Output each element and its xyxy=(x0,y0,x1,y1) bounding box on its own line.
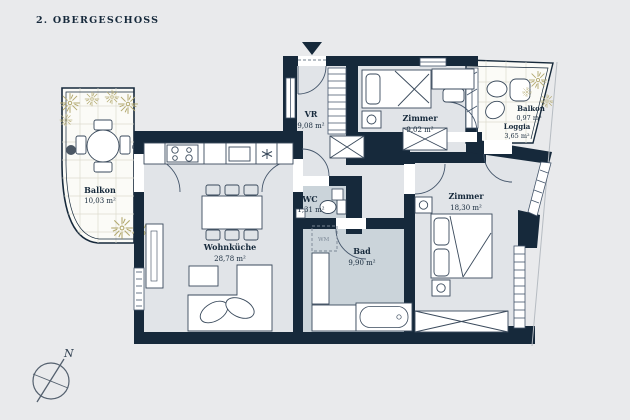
svg-text:9,08 m²: 9,08 m² xyxy=(297,122,324,130)
shaft-access-icon xyxy=(332,189,343,200)
wardrobe-icon xyxy=(415,311,508,332)
bathtub-icon xyxy=(356,303,412,331)
floorplan-svg: WM xyxy=(0,0,630,420)
double-bed-icon xyxy=(431,214,492,278)
svg-text:Zimmer: Zimmer xyxy=(448,191,484,201)
svg-text:28,78 m²: 28,78 m² xyxy=(214,255,246,263)
vr-wardrobe-icon xyxy=(330,136,364,158)
svg-text:Wohnküche: Wohnküche xyxy=(203,242,256,252)
nightstand-icon xyxy=(415,197,432,213)
svg-text:WC: WC xyxy=(301,194,317,204)
svg-text:3,65 m²: 3,65 m² xyxy=(504,132,530,140)
svg-text:VR: VR xyxy=(304,109,318,119)
window-vr-left xyxy=(286,78,295,118)
radiator-icon xyxy=(146,224,163,288)
svg-text:18,30 m²: 18,30 m² xyxy=(450,204,482,212)
floorplan-page: 2. OBERGESCHOSS xyxy=(0,0,630,420)
stove-icon xyxy=(167,145,198,162)
svg-text:Loggia: Loggia xyxy=(504,122,531,131)
washing-machine-label: WM xyxy=(318,237,330,243)
desk-chair-icon xyxy=(443,89,464,102)
side-table-icon xyxy=(189,266,218,286)
svg-text:1,31 m²: 1,31 m² xyxy=(297,206,324,214)
nightstand-icon xyxy=(362,111,381,128)
window-zimmer-top xyxy=(420,58,446,66)
desk-icon xyxy=(432,69,474,89)
window-wohnkueche-left xyxy=(134,268,144,310)
sink-icon xyxy=(229,147,250,161)
svg-text:10,03 m²: 10,03 m² xyxy=(84,197,116,205)
entrance-arrow-icon xyxy=(302,42,322,55)
svg-text:9,02 m²: 9,02 m² xyxy=(406,126,433,134)
stairs-icon xyxy=(328,68,346,134)
svg-text:Balkon: Balkon xyxy=(84,185,116,195)
svg-text:9,90 m²: 9,90 m² xyxy=(348,259,375,267)
bath-counter-icon xyxy=(312,305,356,331)
dining-table-icon xyxy=(202,185,262,240)
nightstand-icon xyxy=(432,280,450,296)
north-compass-icon: N xyxy=(33,347,74,402)
kitchen-counter-icon xyxy=(144,143,293,164)
svg-text:Balkon: Balkon xyxy=(517,104,545,113)
window-right-glazing xyxy=(514,246,525,328)
svg-text:Bad: Bad xyxy=(353,246,371,256)
north-label: N xyxy=(63,347,74,360)
planter-icon xyxy=(66,145,76,155)
svg-text:0,97 m²: 0,97 m² xyxy=(516,114,542,122)
vanity-icon xyxy=(312,253,329,304)
svg-text:Zimmer: Zimmer xyxy=(402,113,438,123)
bed-icon xyxy=(362,70,431,108)
